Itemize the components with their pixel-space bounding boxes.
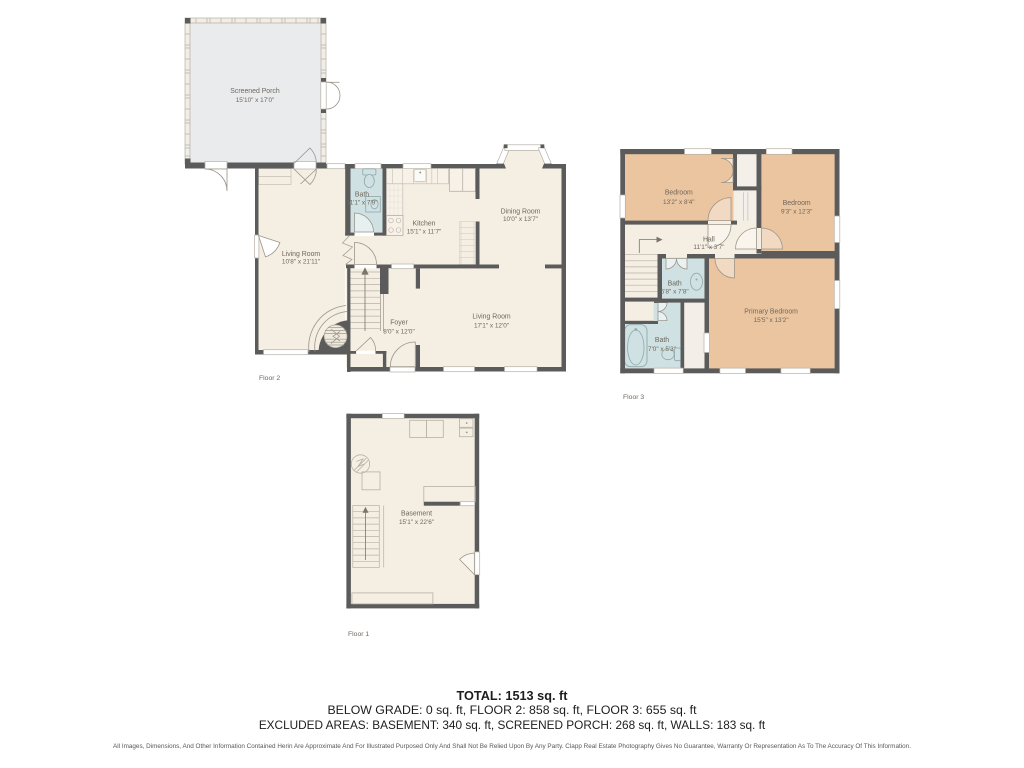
svg-text:Screened Porch: Screened Porch [230,88,280,95]
svg-text:Bedroom: Bedroom [783,200,811,207]
svg-text:15'1" x 22'6": 15'1" x 22'6" [399,519,434,526]
svg-text:Bath: Bath [355,192,369,199]
svg-text:Basement: Basement [401,510,432,517]
svg-text:11'1" x 7'9": 11'1" x 7'9" [346,200,377,207]
svg-text:Bedroom: Bedroom [665,190,693,197]
svg-text:Bath: Bath [668,281,682,288]
svg-text:17'1" x 12'0": 17'1" x 12'0" [474,322,509,329]
svg-text:8'0" x 12'0": 8'0" x 12'0" [383,329,415,336]
svg-text:Primary Bedroom: Primary Bedroom [744,309,798,316]
svg-text:9'3" x 12'3": 9'3" x 12'3" [781,208,813,215]
svg-text:10'0" x 13'7": 10'0" x 13'7" [503,216,538,223]
svg-text:Living Room: Living Room [472,314,511,321]
svg-text:7'0" x 5'3": 7'0" x 5'3" [648,346,676,353]
svg-text:Dining Room: Dining Room [501,209,541,216]
svg-text:Floor 3: Floor 3 [623,394,644,401]
svg-text:5'8" x 7'8": 5'8" x 7'8" [661,289,689,296]
svg-text:Living Room: Living Room [282,251,321,258]
svg-text:Floor 2: Floor 2 [259,375,280,382]
svg-text:10'8" x 21'11": 10'8" x 21'11" [282,259,320,266]
svg-text:15'5" x 13'2": 15'5" x 13'2" [754,317,789,324]
svg-text:Floor 1: Floor 1 [348,631,369,638]
svg-text:Hall: Hall [703,236,715,243]
svg-text:15'10" x 17'0": 15'10" x 17'0" [236,97,275,104]
svg-text:11'1" x 3'7": 11'1" x 3'7" [693,244,724,251]
svg-text:15'1" x 11'7": 15'1" x 11'7" [407,229,442,236]
svg-text:Foyer: Foyer [390,320,408,327]
svg-text:13'2" x 8'4": 13'2" x 8'4" [663,199,695,206]
svg-text:Kitchen: Kitchen [413,221,436,228]
svg-text:Bath: Bath [655,337,669,344]
